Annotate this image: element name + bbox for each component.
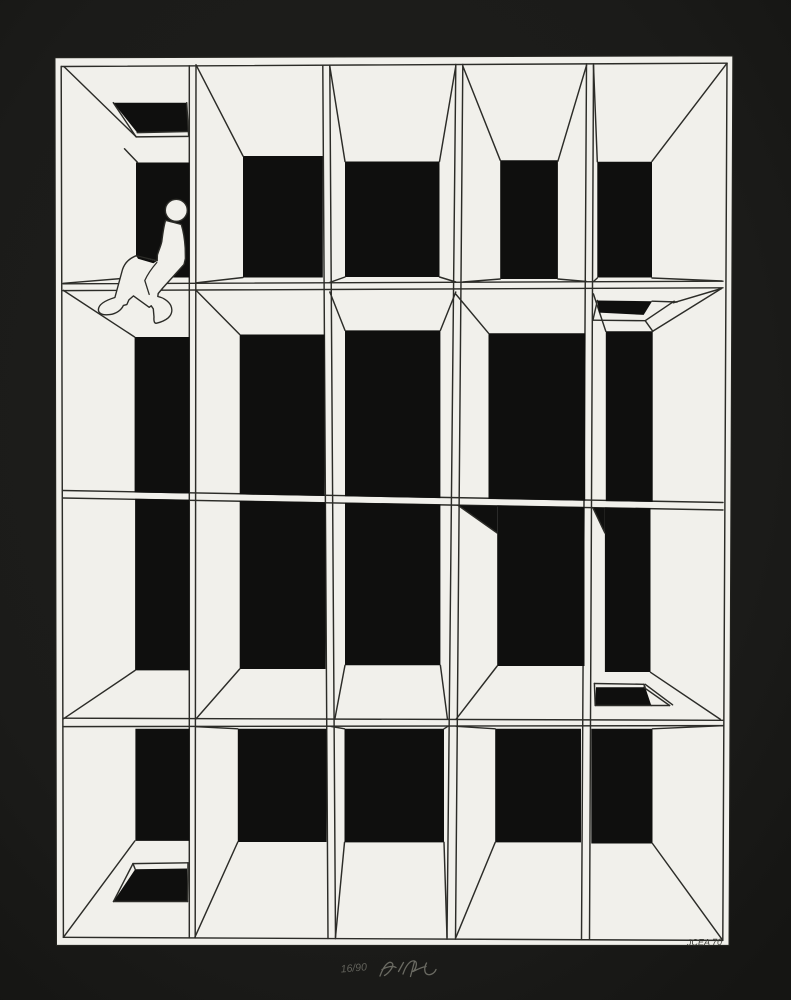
svg-text:16/90: 16/90 bbox=[340, 961, 367, 975]
svg-text:JCEA 70: JCEA 70 bbox=[686, 937, 722, 948]
